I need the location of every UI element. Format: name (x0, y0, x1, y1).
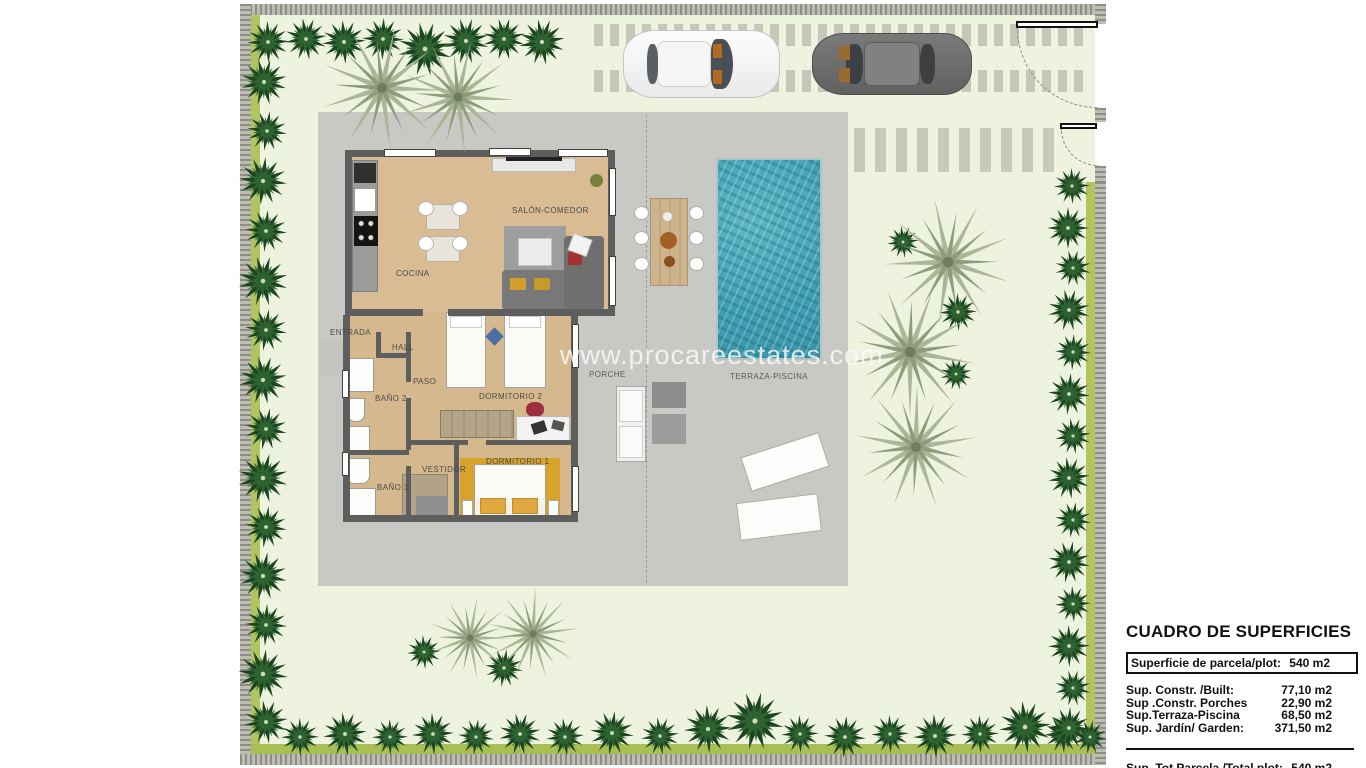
car-roof (864, 42, 920, 86)
dining-chair (452, 201, 468, 216)
wardrobe (440, 410, 514, 438)
outdoor-chair (689, 231, 704, 245)
pillow (450, 316, 482, 328)
gate-post-1 (1095, 108, 1106, 122)
table-divider (1126, 748, 1354, 750)
area-row-total: Sup. Tot.Parcela /Total plot: 540 m2 (1126, 762, 1358, 768)
nightstand (548, 500, 559, 516)
plant-pot-icon (590, 174, 603, 187)
room-label-terraza-piscina: TERRAZA-PISCINA (730, 372, 808, 381)
dining-chair (418, 201, 434, 216)
window-icon (609, 168, 616, 216)
hedge-left (251, 15, 260, 754)
plot-area-label: Superficie de parcela/plot: (1131, 656, 1281, 670)
room-label-cocina: COCINA (396, 269, 430, 278)
car-rear-window (647, 44, 658, 84)
boundary-wall-left (240, 4, 251, 765)
desk-chair (526, 402, 544, 417)
room-label-bano2: BAÑO 2 (375, 394, 407, 403)
nightstand (462, 500, 473, 516)
car-rear-window (920, 44, 935, 84)
side-table (652, 382, 686, 408)
interior-wall (343, 450, 409, 455)
window-icon (342, 370, 349, 398)
fridge-icon (354, 163, 376, 183)
interior-wall (381, 353, 409, 358)
room-label-bano1: BAÑO 1 (377, 483, 409, 492)
rug-center (518, 238, 552, 266)
bench-cushion (619, 426, 643, 458)
dining-chair (452, 236, 468, 251)
cushion (534, 278, 550, 290)
outdoor-chair (634, 257, 649, 271)
room-label-dormitorio2: DORMITORIO 2 (479, 392, 542, 401)
plot-area-row: Superficie de parcela/plot: 540 m2 (1126, 652, 1358, 674)
window-icon (489, 148, 531, 156)
areas-table-title: CUADRO DE SUPERFICIES (1126, 622, 1358, 642)
bathtub-icon (346, 488, 376, 516)
room-label-entrada: ENTRADA (330, 328, 371, 337)
interior-wall (486, 440, 576, 445)
room-label-vestidor: VESTIDOR (422, 465, 466, 474)
areas-table: CUADRO DE SUPERFICIES Superficie de parc… (1126, 622, 1358, 768)
car-seat (839, 46, 850, 60)
side-table (652, 414, 686, 444)
room-label-salon: SALÓN-COMEDOR (512, 206, 589, 215)
white-car (623, 30, 780, 98)
car-roof (657, 41, 711, 87)
shower-icon (346, 358, 374, 392)
house-wall (343, 315, 350, 522)
bench-cushion (619, 390, 643, 422)
house-wall (343, 515, 578, 522)
window-icon (609, 256, 616, 306)
window-icon (558, 149, 608, 157)
dining-chair (418, 236, 434, 251)
window-icon (572, 466, 579, 512)
interior-wall (410, 440, 468, 445)
areas-rows: Sup. Constr. /Built: 77,10 m2 Sup .Const… (1126, 684, 1358, 734)
room-label-hall: HALL (392, 343, 414, 352)
room-label-paso: PASO (413, 377, 436, 386)
boundary-wall-top (240, 4, 1106, 15)
pillow (480, 498, 506, 514)
cushion (510, 278, 526, 290)
plate-icon (660, 232, 677, 249)
pillow (509, 316, 541, 328)
house-wall (345, 150, 352, 315)
outdoor-chair (634, 231, 649, 245)
swimming-pool (716, 158, 822, 360)
plate-icon (663, 212, 672, 221)
outdoor-chair (689, 257, 704, 271)
gray-car (812, 33, 972, 95)
cooktop-icon (354, 216, 378, 246)
house-wall (345, 309, 423, 316)
plot-area-value: 540 m2 (1289, 656, 1330, 670)
boundary-wall-right (1095, 182, 1106, 765)
area-row-jardin: Sup. Jardín/ Garden: 371,50 m2 (1126, 722, 1358, 735)
outdoor-chair (634, 206, 649, 220)
plate-icon (664, 256, 675, 267)
outdoor-chair (689, 206, 704, 220)
room-label-dormitorio1: DORMITORIO 1 (486, 457, 549, 466)
hedge-right (1086, 182, 1095, 744)
stepping-path (854, 128, 1062, 172)
car-seat (713, 70, 722, 84)
site-plan: ENTRADA HALL COCINA SALÓN-COMEDOR PASO B… (0, 0, 1366, 768)
house-wall (448, 309, 615, 316)
interior-wall (454, 445, 459, 517)
vehicle-gate-leaf (1016, 21, 1098, 28)
kitchen-sink-icon (354, 188, 376, 212)
car-seat (839, 68, 850, 82)
window-icon (342, 452, 349, 476)
hedge-bottom (251, 744, 1095, 754)
boundary-wall-bottom (240, 754, 1106, 765)
room-label-porche: PORCHE (589, 370, 626, 379)
area-row-built: Sup. Constr. /Built: 77,10 m2 (1126, 684, 1358, 697)
watermark: www.procareestates.com (560, 340, 884, 371)
area-row-terraza-piscina: Sup.Terraza-Piscina 68,50 m2 (1126, 709, 1358, 722)
pillow (512, 498, 538, 514)
duvet (476, 466, 544, 498)
window-icon (384, 149, 436, 157)
car-seat (713, 44, 722, 58)
gate-post-2 (1095, 166, 1106, 182)
